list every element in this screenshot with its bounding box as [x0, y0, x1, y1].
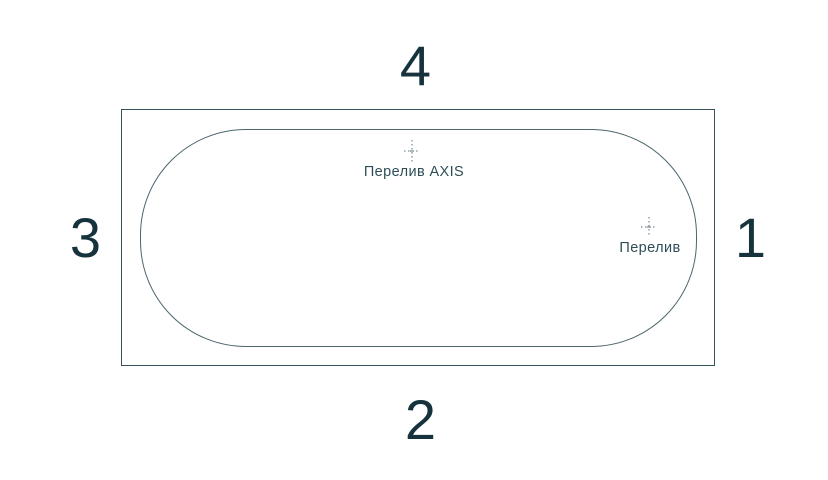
side-number-bottom: 2	[390, 390, 450, 450]
center-mark-icon	[637, 215, 661, 239]
bathtub-top-view-diagram: 4 2 3 1 Перелив AXIS Перелив	[0, 0, 828, 480]
side-number-right: 1	[720, 208, 780, 268]
side-number-left: 3	[55, 208, 115, 268]
side-number-top: 4	[385, 36, 445, 96]
overflow-axis-label: Перелив AXIS	[354, 164, 474, 180]
overflow-label: Перелив	[600, 240, 700, 256]
center-mark-icon	[400, 139, 424, 163]
